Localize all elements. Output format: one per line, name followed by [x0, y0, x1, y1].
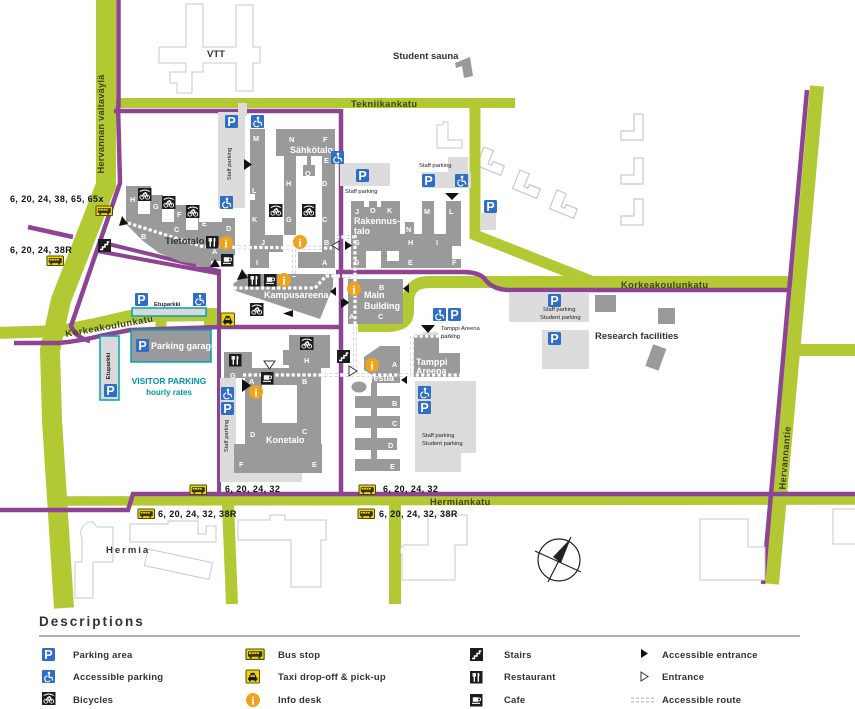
svg-text:Research facilities: Research facilities [595, 331, 678, 342]
svg-text:Staff parking: Staff parking [224, 420, 230, 452]
svg-text:Student sauna: Student sauna [393, 51, 459, 62]
svg-text:N: N [406, 225, 411, 234]
svg-text:K: K [387, 206, 393, 215]
svg-text:parking: parking [441, 334, 460, 340]
svg-text:M: M [424, 207, 430, 216]
svg-text:Building: Building [364, 301, 400, 311]
svg-text:6, 20, 24, 38R: 6, 20, 24, 38R [10, 245, 72, 255]
svg-text:6, 20, 24, 32: 6, 20, 24, 32 [225, 484, 280, 494]
svg-text:Accessible route: Accessible route [662, 695, 741, 706]
svg-text:E: E [324, 156, 329, 165]
svg-text:M: M [253, 134, 259, 143]
svg-text:Main: Main [364, 290, 385, 300]
svg-text:O: O [305, 169, 311, 178]
svg-text:Restaurant: Restaurant [504, 672, 556, 683]
svg-text:D: D [322, 179, 327, 188]
svg-text:H: H [130, 195, 135, 204]
svg-text:Info desk: Info desk [278, 695, 322, 706]
svg-text:C: C [174, 225, 180, 234]
svg-text:C: C [322, 215, 328, 224]
svg-text:Accessible parking: Accessible parking [73, 672, 163, 683]
svg-text:F: F [452, 258, 457, 267]
svg-text:Konetalo: Konetalo [266, 435, 305, 445]
svg-text:C: C [378, 312, 384, 321]
svg-text:G: G [286, 215, 292, 224]
svg-text:L: L [252, 186, 257, 195]
svg-text:6, 20, 24, 38, 65, 65x: 6, 20, 24, 38, 65, 65x [10, 194, 104, 204]
svg-text:Rakennus-: Rakennus- [354, 216, 400, 226]
svg-text:Cafe: Cafe [504, 695, 525, 706]
svg-text:VISITOR PARKING: VISITOR PARKING [132, 376, 207, 386]
svg-text:Tietotalo: Tietotalo [165, 236, 205, 247]
svg-text:Korkeakoulunkatu: Korkeakoulunkatu [621, 280, 709, 290]
svg-text:L: L [449, 207, 454, 216]
svg-text:Sähkötalo: Sähkötalo [290, 145, 334, 155]
svg-text:N: N [289, 135, 294, 144]
svg-text:H: H [286, 179, 291, 188]
svg-text:VTT: VTT [207, 49, 225, 60]
svg-text:H: H [304, 356, 309, 365]
svg-text:6, 20, 24, 32, 38R: 6, 20, 24, 32, 38R [158, 509, 237, 519]
svg-text:Staff parking: Staff parking [419, 163, 451, 169]
svg-text:I: I [256, 258, 258, 267]
svg-text:D: D [388, 441, 393, 450]
svg-text:Staff parking: Staff parking [543, 307, 575, 313]
svg-text:Taxi drop-off & pick-up: Taxi drop-off & pick-up [278, 672, 386, 683]
svg-text:Entrance: Entrance [662, 672, 704, 683]
svg-text:Descriptions: Descriptions [39, 614, 145, 629]
svg-text:A: A [322, 258, 328, 267]
svg-text:Festia: Festia [368, 373, 395, 383]
svg-text:B: B [302, 377, 307, 386]
svg-text:Stairs: Stairs [504, 650, 532, 661]
svg-text:H: H [408, 238, 413, 247]
svg-text:Accessible entrance: Accessible entrance [662, 650, 758, 661]
svg-text:O: O [370, 206, 376, 215]
svg-text:Staff parking: Staff parking [345, 189, 377, 195]
svg-text:Parking garage: Parking garage [151, 341, 216, 351]
svg-text:Kampusareena: Kampusareena [264, 290, 330, 300]
svg-text:Hermia: Hermia [106, 545, 150, 556]
svg-text:Areena: Areena [416, 366, 448, 376]
svg-text:C: C [392, 419, 398, 428]
svg-text:Student parking: Student parking [540, 315, 581, 321]
svg-text:Hermiankatu: Hermiankatu [430, 497, 491, 507]
svg-text:D: D [226, 224, 231, 233]
svg-text:6, 20, 24, 32, 38R: 6, 20, 24, 32, 38R [379, 509, 458, 519]
svg-text:I: I [436, 238, 438, 247]
svg-text:E: E [408, 258, 413, 267]
svg-text:Etuparkki: Etuparkki [106, 352, 112, 379]
svg-text:Staff parking: Staff parking [227, 148, 233, 180]
svg-text:E: E [202, 219, 207, 228]
svg-text:G: G [153, 202, 159, 211]
svg-text:talo: talo [354, 226, 371, 236]
svg-text:Bicycles: Bicycles [73, 695, 113, 706]
svg-text:K: K [252, 215, 258, 224]
svg-text:Parking area: Parking area [73, 650, 133, 661]
svg-text:E: E [390, 462, 395, 471]
svg-text:E: E [312, 460, 317, 469]
svg-text:Student parking: Student parking [422, 441, 463, 447]
svg-text:B: B [141, 232, 146, 241]
svg-text:Hervannan valtaväylä: Hervannan valtaväylä [96, 74, 106, 174]
svg-text:J: J [355, 207, 359, 216]
svg-text:F: F [239, 460, 244, 469]
svg-text:F: F [177, 210, 182, 219]
svg-text:Tamppi Areena: Tamppi Areena [441, 326, 480, 332]
svg-text:6, 20, 24, 32: 6, 20, 24, 32 [383, 484, 438, 494]
svg-text:D: D [250, 430, 255, 439]
svg-text:Etuparkki: Etuparkki [154, 302, 181, 308]
svg-text:A: A [392, 360, 398, 369]
svg-text:B: B [392, 399, 397, 408]
svg-text:Tekniikankatu: Tekniikankatu [351, 99, 418, 109]
svg-text:hourly rates: hourly rates [146, 388, 192, 397]
svg-text:G: G [230, 371, 236, 380]
svg-text:Bus stop: Bus stop [278, 650, 320, 661]
svg-text:B: B [324, 238, 329, 247]
svg-text:Staff parking: Staff parking [422, 433, 454, 439]
svg-text:F: F [323, 135, 328, 144]
